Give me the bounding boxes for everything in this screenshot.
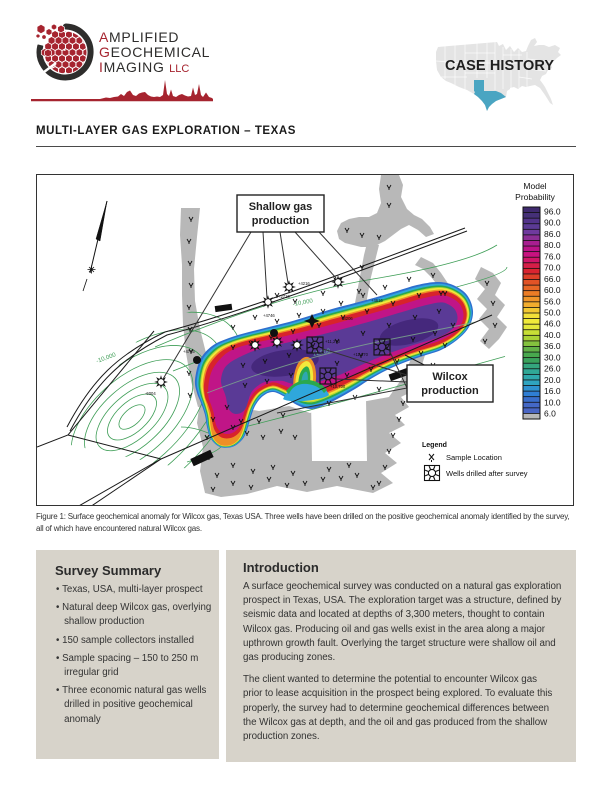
- svg-text:26.0: 26.0: [544, 364, 561, 374]
- svg-text:+4206: +4206: [341, 316, 353, 321]
- svg-text:+11,870: +11,870: [353, 352, 369, 357]
- svg-text:+11,270: +11,270: [325, 339, 341, 344]
- svg-text:Legend: Legend: [422, 442, 447, 449]
- svg-text:Wells drilled after survey: Wells drilled after survey: [446, 469, 528, 478]
- svg-text:Sample Location: Sample Location: [446, 453, 502, 462]
- svg-text:+10,700: +10,700: [330, 384, 346, 389]
- svg-text:36.0: 36.0: [544, 341, 561, 351]
- svg-text:66.0: 66.0: [544, 274, 561, 284]
- svg-text:+4216: +4216: [298, 281, 310, 286]
- svg-text:-10,000: -10,000: [292, 298, 314, 308]
- svg-text:60.0: 60.0: [544, 285, 561, 295]
- svg-text:Shallow gas: Shallow gas: [249, 201, 313, 213]
- svg-text:10.0: 10.0: [544, 397, 561, 407]
- svg-text:16.0: 16.0: [544, 386, 561, 396]
- svg-text:20.0: 20.0: [544, 375, 561, 385]
- svg-text:production: production: [421, 385, 479, 397]
- svg-text:30.0: 30.0: [544, 352, 561, 362]
- svg-text:+4616: +4616: [371, 298, 383, 303]
- svg-text:76.0: 76.0: [544, 251, 561, 261]
- svg-text:96.0: 96.0: [544, 207, 561, 217]
- svg-text:-10,000: -10,000: [96, 352, 118, 365]
- svg-text:Model: Model: [523, 181, 546, 191]
- svg-text:Probability: Probability: [515, 192, 555, 202]
- svg-text:+4746: +4746: [263, 313, 275, 318]
- svg-text:80.0: 80.0: [544, 240, 561, 250]
- svg-text:40.0: 40.0: [544, 330, 561, 340]
- svg-text:70.0: 70.0: [544, 263, 561, 273]
- svg-text:50.0: 50.0: [544, 308, 561, 318]
- svg-text:+4725: +4725: [183, 349, 195, 354]
- svg-text:Wilcox: Wilcox: [432, 371, 468, 383]
- svg-text:+2716: +2716: [278, 294, 290, 299]
- svg-text:46.0: 46.0: [544, 319, 561, 329]
- svg-text:56.0: 56.0: [544, 296, 561, 306]
- svg-text:-6004: -6004: [145, 391, 156, 396]
- svg-text:6.0: 6.0: [544, 409, 556, 419]
- svg-text:90.0: 90.0: [544, 218, 561, 228]
- svg-text:production: production: [252, 215, 310, 227]
- svg-text:86.0: 86.0: [544, 229, 561, 239]
